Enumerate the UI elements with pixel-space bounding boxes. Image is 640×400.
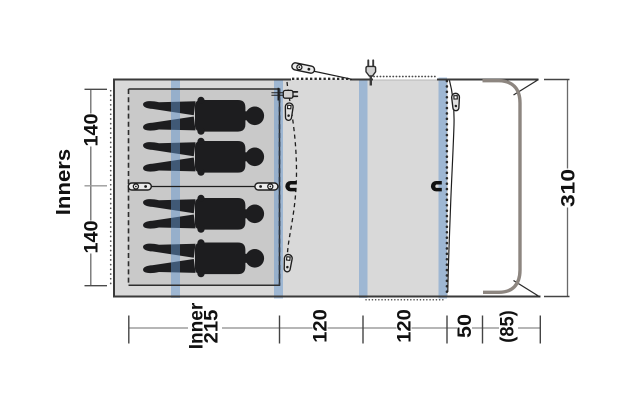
- svg-text:50: 50: [455, 314, 476, 338]
- svg-text:120: 120: [310, 309, 331, 343]
- svg-text:120: 120: [395, 309, 416, 343]
- svg-text:140: 140: [81, 114, 102, 147]
- svg-text:140: 140: [81, 221, 102, 254]
- svg-text:310: 310: [558, 169, 579, 207]
- svg-text:215: 215: [202, 309, 223, 343]
- svg-text:(85): (85): [497, 310, 518, 343]
- svg-text:Inners: Inners: [53, 149, 75, 216]
